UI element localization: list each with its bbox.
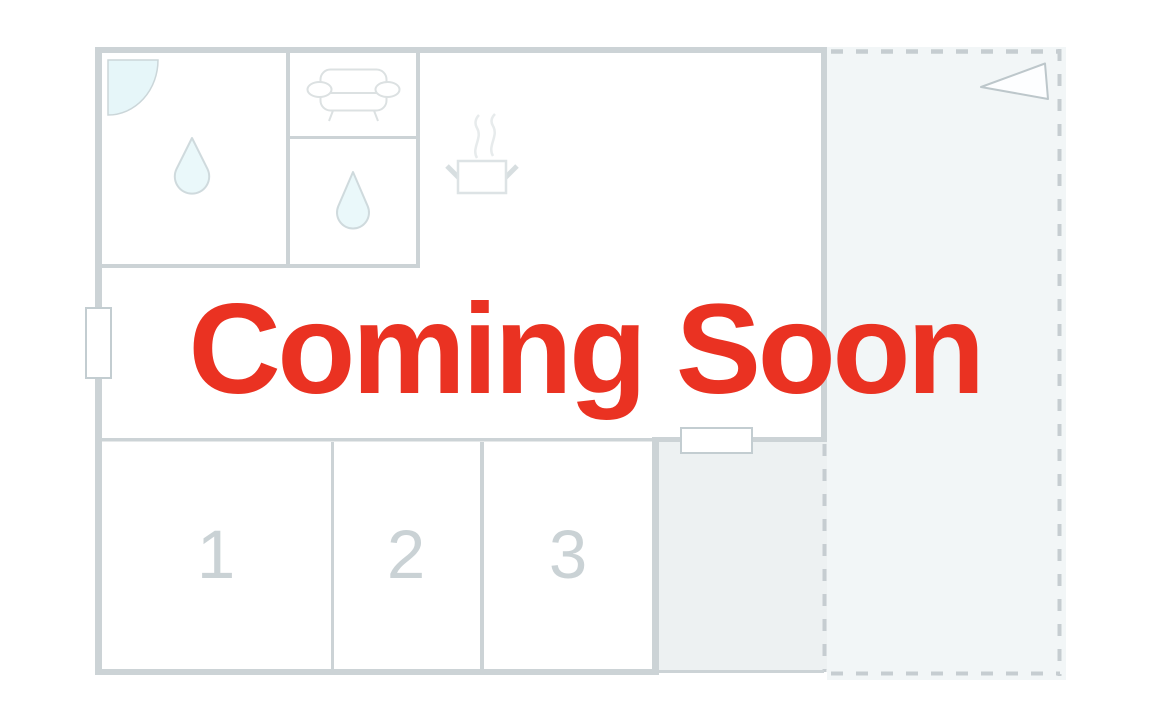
- svg-text:2: 2: [387, 516, 425, 593]
- svg-text:3: 3: [549, 516, 587, 593]
- svg-text:1: 1: [197, 516, 235, 593]
- svg-text:Coming Soon: Coming Soon: [188, 278, 981, 421]
